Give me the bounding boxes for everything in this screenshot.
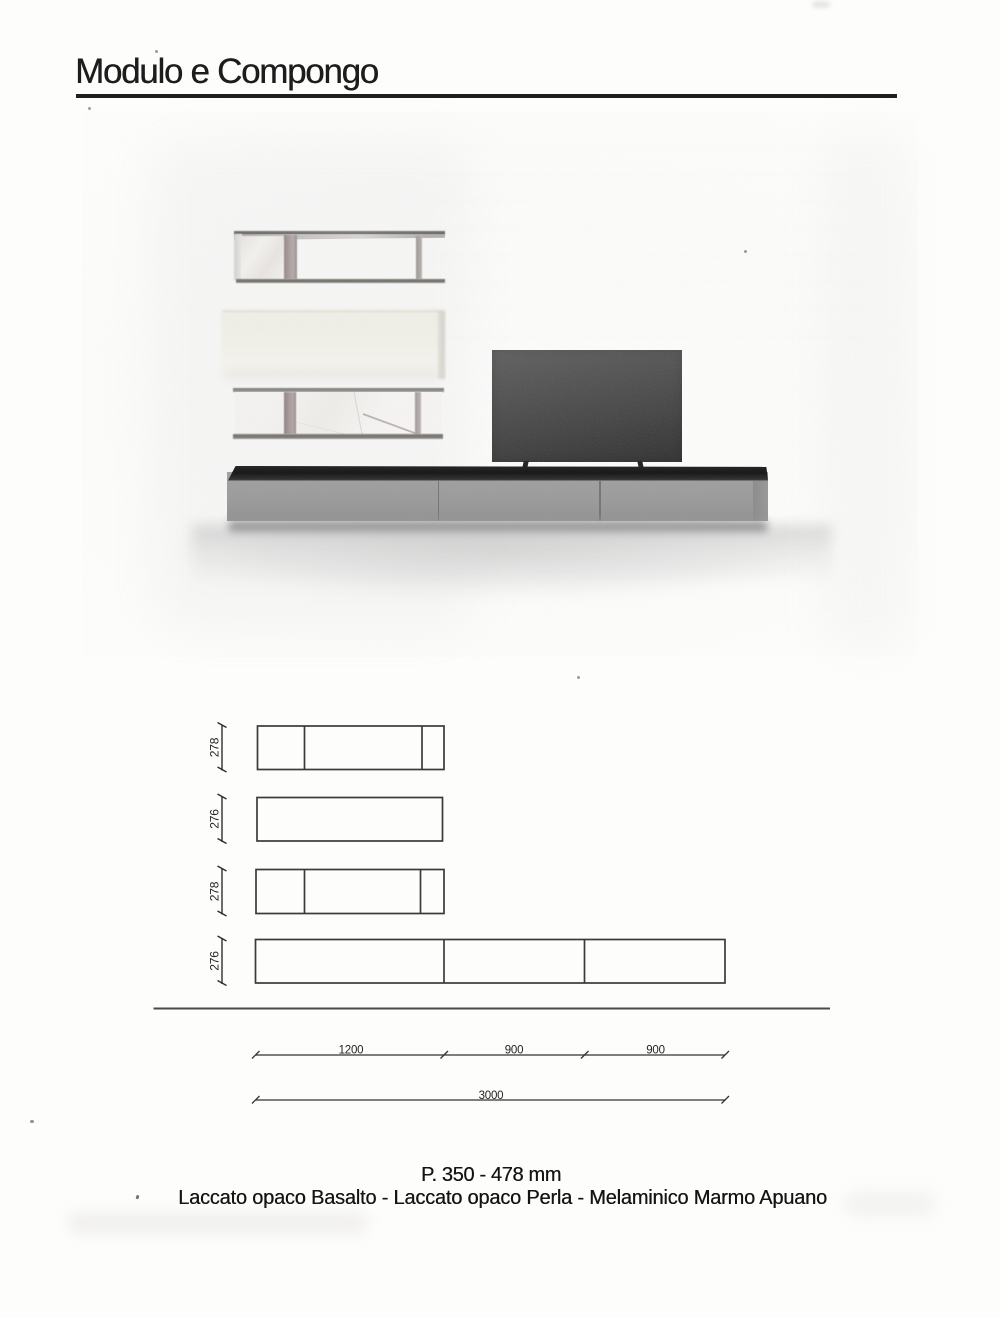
svg-text:276: 276 bbox=[208, 951, 222, 971]
svg-text:278: 278 bbox=[208, 881, 222, 901]
svg-text:276: 276 bbox=[208, 809, 222, 829]
svg-text:900: 900 bbox=[646, 1045, 665, 1057]
svg-text:900: 900 bbox=[505, 1045, 524, 1057]
svg-text:1200: 1200 bbox=[339, 1045, 364, 1057]
svg-text:278: 278 bbox=[208, 737, 222, 757]
svg-text:3000: 3000 bbox=[479, 1090, 504, 1102]
